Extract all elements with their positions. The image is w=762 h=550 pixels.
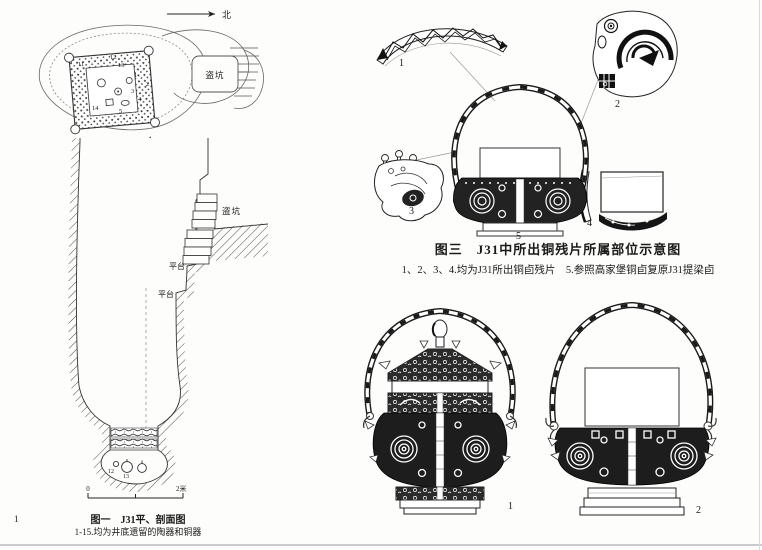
north-label: 北 (222, 10, 231, 20)
scan-edge-right (759, 0, 760, 550)
bottom-item-number: 12 (108, 469, 114, 475)
fragment-2-spiral-ornament: 2 (593, 11, 677, 110)
vessel-2-drawing: 2 (546, 305, 716, 516)
fragment-3-fitting: 3 (374, 151, 443, 221)
scale-zero-label: 0 (86, 485, 90, 493)
figure1-caption-title: 图一 J31平、剖面图 (28, 511, 248, 526)
plan-item-number: 14 (92, 105, 99, 112)
figure3-caption-note: 1、2、3、4.均为J31所出铜卣残片 5.参照高家堡铜卣复原J31提梁卣 (358, 262, 758, 277)
fragment-label: 4 (587, 218, 592, 229)
plan-robber-pit-label: 盗坑 (205, 70, 224, 80)
fragment-label: 2 (615, 99, 620, 110)
figure3-caption-title: 图三 J31中所出铜残片所属部位示意图 (368, 239, 748, 258)
plan-item-number: 5 (119, 108, 122, 115)
page-number: 1 (14, 514, 19, 524)
platform-upper-label: 平台 (169, 261, 185, 271)
section-fill-layers (110, 428, 158, 450)
scanned-report-page: 北 盗坑 (0, 0, 762, 550)
scan-edge-bottom (0, 544, 762, 546)
fragment-label: 1 (399, 58, 404, 69)
fragment-label: 3 (409, 206, 414, 217)
figure1-caption-note: 1-15.均为井底遗留的陶器和铜器 (20, 525, 256, 538)
vessel-5-restored: 5 (454, 87, 587, 240)
north-arrow: 北 (167, 10, 231, 20)
section-robber-pit-label: 盗坑 (222, 206, 241, 216)
vessel-1-drawing: 1 (364, 311, 517, 514)
vessel-label: 2 (696, 505, 701, 516)
scale-length-label: 2米 (176, 484, 187, 493)
plan-item-number: 2 (146, 81, 149, 88)
fragment-4-lid-corner: 4 (580, 170, 667, 231)
plan-item-number: 1 (134, 72, 137, 79)
fragment-position-diagram: 1 2 (355, 8, 760, 240)
well-plan-drawing: 北 盗坑 (12, 4, 287, 146)
plan-item-number: 13 (118, 62, 125, 69)
platform-lower-label: 平台 (158, 289, 174, 299)
plan-item-number: 3 (131, 88, 134, 95)
vessel-label: 1 (508, 501, 513, 512)
plan-item-number: 12 (110, 54, 117, 61)
bottom-item-number: 13 (123, 474, 129, 480)
fragment-1-handle-arc: 1 (377, 28, 507, 69)
well-section-drawing: 盗坑 平台 平台 12 13 0 2米 (50, 138, 274, 512)
plan-item-number: 11 (78, 61, 84, 68)
plan-robber-pit: 盗坑 (192, 56, 248, 92)
vessel-drawings: 1 2 (352, 300, 762, 522)
